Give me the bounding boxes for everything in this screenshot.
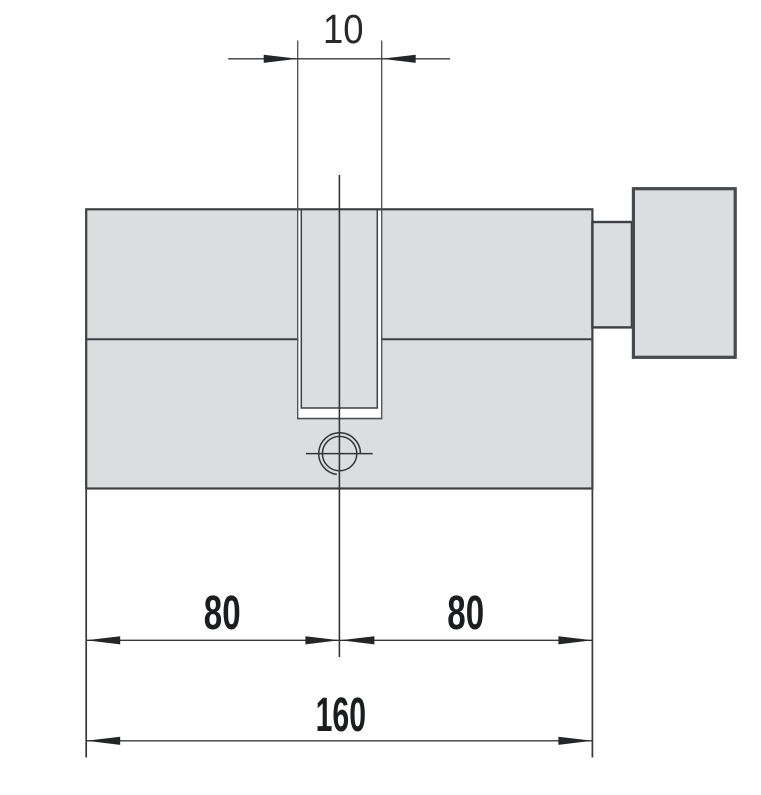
- svg-text:160: 160: [316, 687, 366, 742]
- svg-text:10: 10: [323, 7, 364, 52]
- svg-text:80: 80: [447, 586, 484, 640]
- svg-text:80: 80: [204, 586, 241, 640]
